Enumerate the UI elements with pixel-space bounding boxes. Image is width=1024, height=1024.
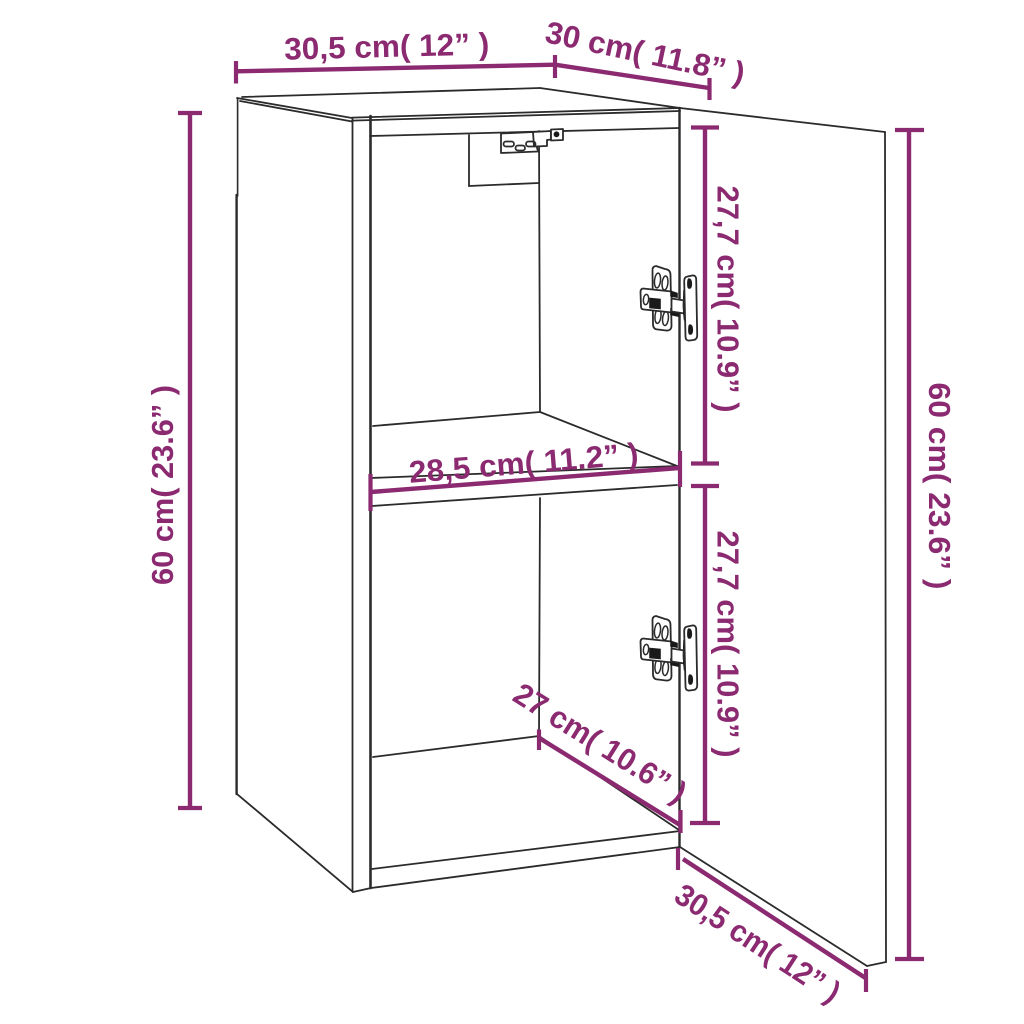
svg-text:27,7 cm( 10.9” ): 27,7 cm( 10.9” )	[711, 186, 746, 413]
svg-text:60 cm( 23.6” ): 60 cm( 23.6” )	[922, 383, 957, 590]
svg-text:27,7 cm( 10.9” ): 27,7 cm( 10.9” )	[711, 531, 746, 758]
svg-text:60 cm( 23.6” ): 60 cm( 23.6” )	[145, 385, 180, 585]
svg-text:30,5 cm( 12” ): 30,5 cm( 12” )	[284, 26, 490, 66]
